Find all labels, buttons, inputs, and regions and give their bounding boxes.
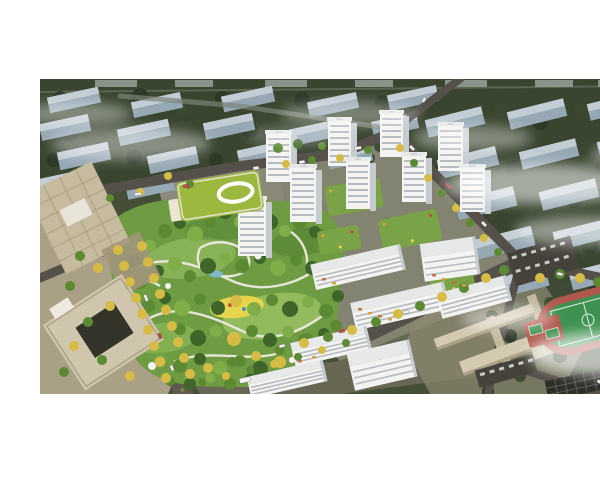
car xyxy=(253,166,259,170)
street-tree xyxy=(113,245,123,255)
street-tree xyxy=(155,357,165,367)
street-tree xyxy=(75,251,85,261)
street-tree xyxy=(270,360,278,368)
rendering-canvas xyxy=(40,16,600,466)
street-tree xyxy=(452,204,460,212)
street-tree xyxy=(227,357,237,367)
letterbox-top xyxy=(40,16,600,79)
street-tree xyxy=(222,372,230,380)
street-tree xyxy=(466,219,474,227)
street-tree xyxy=(364,146,372,154)
street-tree xyxy=(185,369,195,379)
park-tree xyxy=(205,373,215,383)
street-tree xyxy=(318,346,326,354)
mist-cloud xyxy=(50,128,210,160)
street-tree xyxy=(424,174,432,182)
street-tree xyxy=(93,263,103,273)
park-tree xyxy=(194,353,206,365)
park-tree xyxy=(174,300,190,316)
park-tree xyxy=(235,259,249,273)
park-tree xyxy=(184,378,196,390)
street-tree xyxy=(131,293,141,303)
street-tree xyxy=(198,378,206,386)
street-tree xyxy=(125,371,135,381)
park-tree xyxy=(184,270,196,282)
street-tree xyxy=(69,341,79,351)
park-tree xyxy=(319,304,333,318)
park-tree xyxy=(290,254,302,266)
park-tree xyxy=(282,326,294,338)
street-tree xyxy=(246,366,254,374)
park-tree xyxy=(263,333,277,347)
park-tree xyxy=(200,258,216,274)
street-tree xyxy=(535,273,545,283)
park-tree xyxy=(270,260,286,276)
park-tree xyxy=(227,332,241,346)
park-tree xyxy=(246,325,258,337)
street-tree xyxy=(396,144,404,152)
street-tree xyxy=(97,355,107,365)
playground-equipment xyxy=(242,307,246,311)
street-tree xyxy=(575,273,585,283)
background-tree xyxy=(574,102,586,114)
street-tree xyxy=(323,332,333,342)
park-tree xyxy=(230,295,242,307)
residential-slab xyxy=(420,236,481,281)
street-tree xyxy=(437,292,447,302)
street-tree xyxy=(106,194,114,202)
background-tree xyxy=(494,104,506,116)
car xyxy=(299,160,305,164)
street-tree xyxy=(161,305,171,315)
park-tree xyxy=(332,290,344,302)
street-tree xyxy=(161,373,171,383)
street-tree xyxy=(143,257,153,267)
car xyxy=(354,146,361,150)
street-tree xyxy=(393,309,403,319)
street-tree xyxy=(59,367,69,377)
street-tree xyxy=(494,248,502,256)
park-tree xyxy=(190,330,206,346)
residential-tower xyxy=(289,164,322,224)
street-tree xyxy=(125,277,135,287)
street-tree xyxy=(336,154,344,162)
park-tree xyxy=(194,293,206,305)
street-tree xyxy=(137,241,147,251)
mist-cloud xyxy=(246,126,346,146)
park-canopy xyxy=(148,362,156,370)
street-tree xyxy=(137,309,147,319)
street-tree xyxy=(308,156,316,164)
park-tree xyxy=(168,257,182,271)
street-tree xyxy=(105,301,115,311)
street-tree xyxy=(480,234,488,242)
background-tree xyxy=(522,207,534,219)
street-tree xyxy=(143,325,153,335)
mist-cloud xyxy=(412,125,532,151)
street-tree xyxy=(342,339,350,347)
street-tree xyxy=(164,172,172,180)
street-tree xyxy=(251,351,261,361)
park-tree xyxy=(158,224,172,238)
street-tree xyxy=(294,353,302,361)
street-tree xyxy=(155,289,165,299)
park-tree xyxy=(279,225,291,237)
street-tree xyxy=(347,325,357,335)
street-tree xyxy=(499,265,509,275)
street-tree xyxy=(167,321,177,331)
street-tree xyxy=(438,189,446,197)
letterbox-bottom xyxy=(40,394,600,466)
park-tree xyxy=(211,301,225,315)
street-tree xyxy=(179,353,189,363)
park-tree xyxy=(219,252,231,264)
street-tree xyxy=(415,301,425,311)
street-tree xyxy=(282,160,290,168)
mist-cloud xyxy=(280,101,420,127)
street-tree xyxy=(203,363,213,373)
street-tree xyxy=(481,273,491,283)
street-tree xyxy=(65,281,75,291)
park-tree xyxy=(266,294,278,306)
street-tree xyxy=(149,273,159,283)
street-tree xyxy=(299,338,309,348)
park-tree xyxy=(210,325,222,337)
park-tree xyxy=(282,301,298,317)
park-tree xyxy=(247,302,261,316)
aerial-rendering xyxy=(40,16,600,466)
mist-cloud xyxy=(462,306,554,330)
park-tree xyxy=(187,226,203,242)
residential-tower xyxy=(345,157,376,211)
street-tree xyxy=(83,317,93,327)
street-tree xyxy=(119,261,129,271)
street-tree xyxy=(371,317,381,327)
street-tree xyxy=(173,337,183,347)
street-tree xyxy=(410,159,418,167)
street-tree xyxy=(149,341,159,351)
park-tree xyxy=(302,296,314,308)
park-canopy xyxy=(165,283,171,289)
